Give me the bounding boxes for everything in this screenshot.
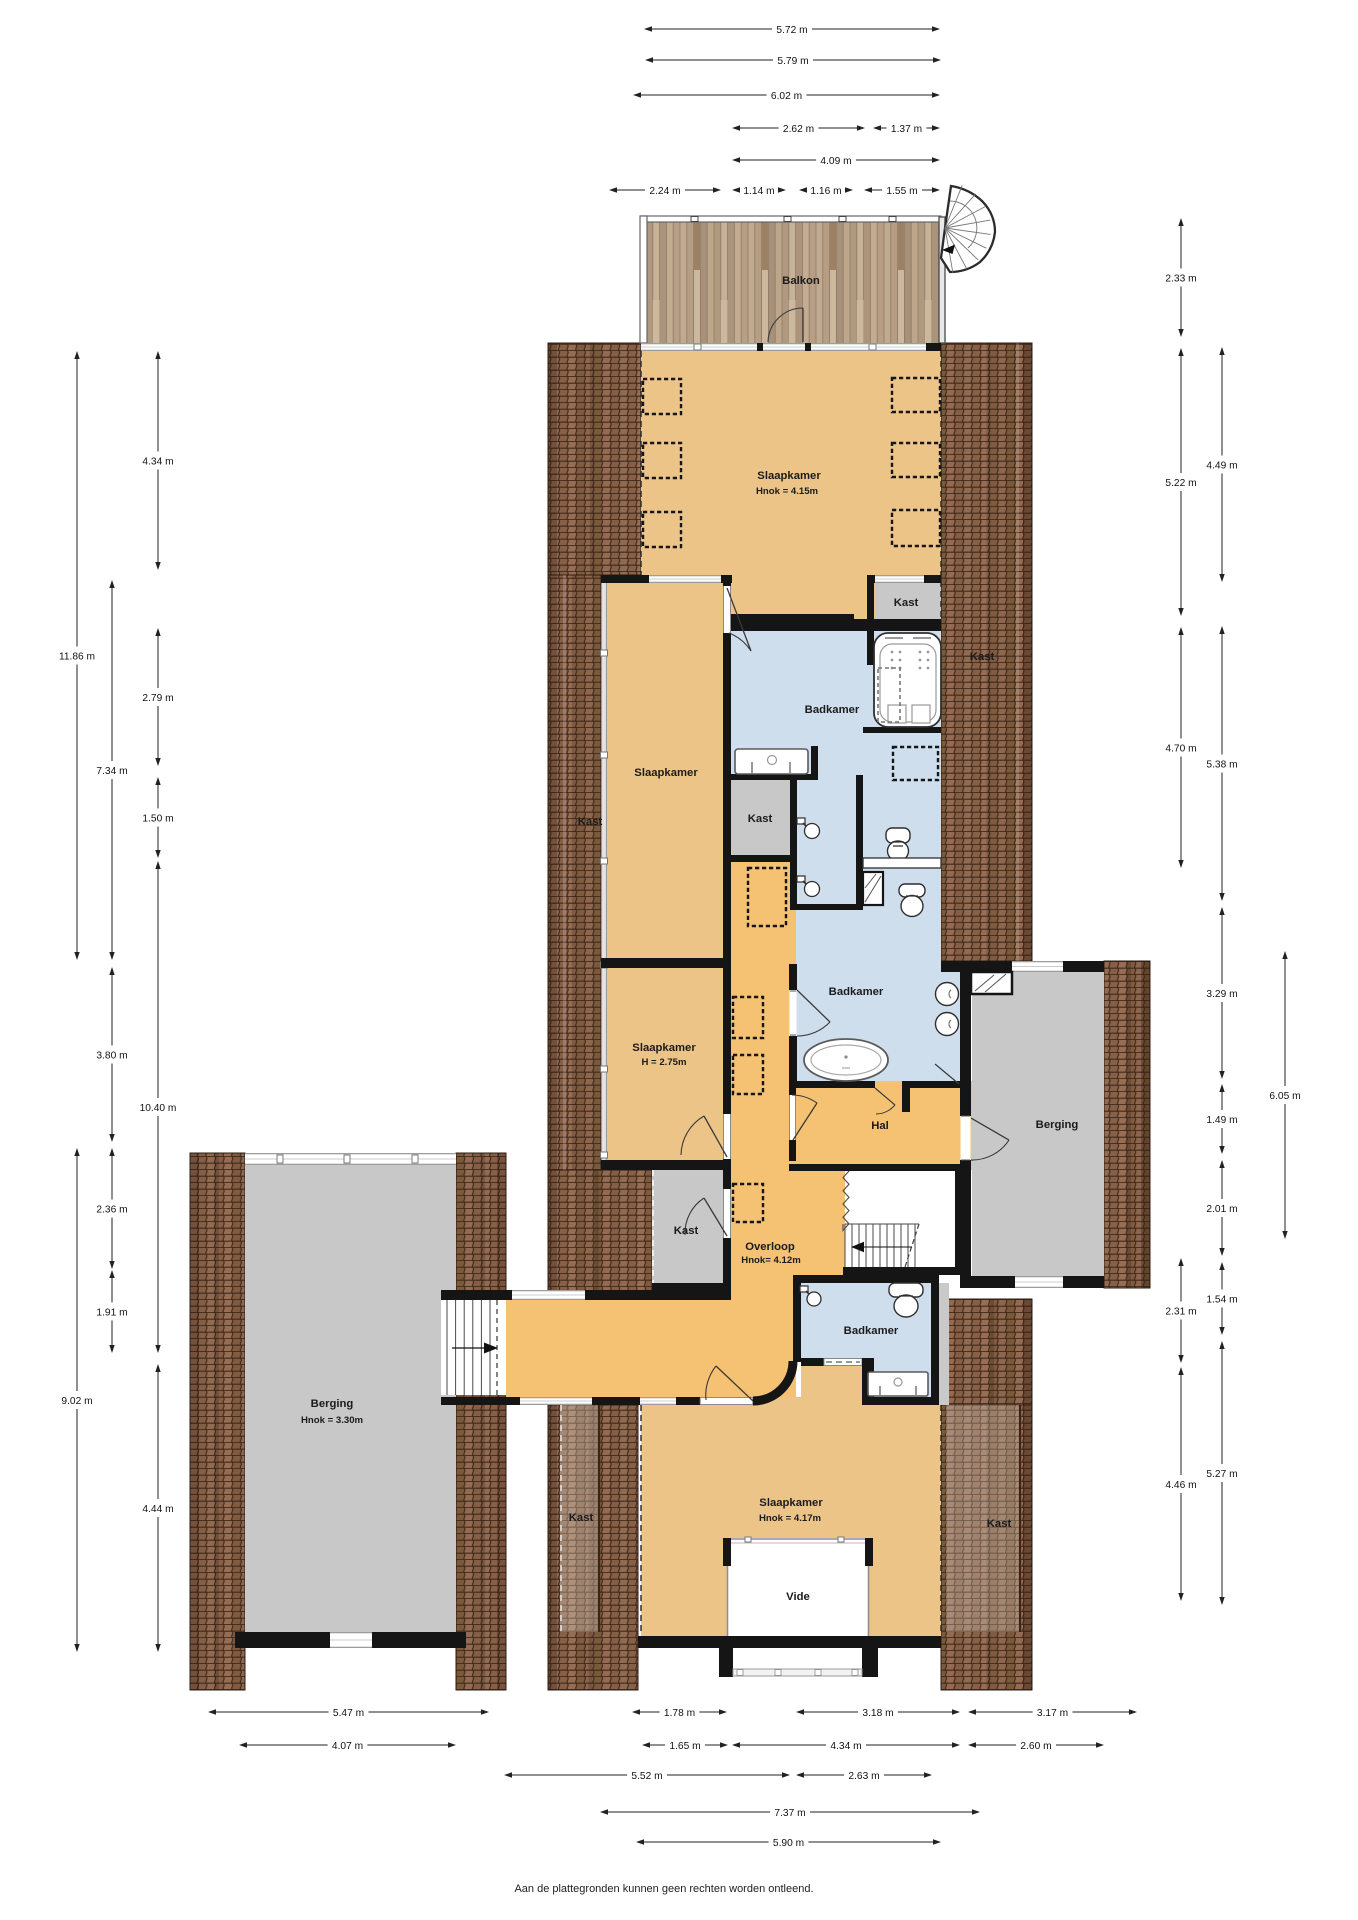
- svg-text:Kast: Kast: [569, 1512, 594, 1524]
- svg-text:4.09 m: 4.09 m: [820, 156, 851, 167]
- svg-text:2.36 m: 2.36 m: [96, 1205, 127, 1216]
- svg-text:4.49 m: 4.49 m: [1206, 461, 1237, 472]
- svg-text:9.02 m: 9.02 m: [61, 1396, 92, 1407]
- svg-text:2.63 m: 2.63 m: [848, 1771, 879, 1782]
- svg-text:Badkamer: Badkamer: [805, 704, 860, 716]
- svg-text:5.22 m: 5.22 m: [1165, 478, 1196, 489]
- svg-text:Balkon: Balkon: [782, 275, 820, 287]
- svg-text:3.29 m: 3.29 m: [1206, 989, 1237, 1000]
- svg-text:Kast: Kast: [970, 651, 995, 663]
- svg-text:1.37 m: 1.37 m: [891, 124, 922, 135]
- svg-text:Berging: Berging: [1036, 1119, 1079, 1131]
- svg-text:5.38 m: 5.38 m: [1206, 760, 1237, 771]
- svg-text:Hnok= 4.12m: Hnok= 4.12m: [741, 1255, 800, 1266]
- svg-text:Kast: Kast: [578, 816, 603, 828]
- svg-text:4.34 m: 4.34 m: [830, 1741, 861, 1752]
- svg-text:Kast: Kast: [987, 1518, 1012, 1530]
- svg-text:3.17 m: 3.17 m: [1037, 1708, 1068, 1719]
- svg-text:2.01 m: 2.01 m: [1206, 1204, 1237, 1215]
- svg-text:4.07 m: 4.07 m: [332, 1741, 363, 1752]
- svg-text:1.91 m: 1.91 m: [96, 1308, 127, 1319]
- svg-text:Badkamer: Badkamer: [829, 986, 884, 998]
- svg-text:7.34 m: 7.34 m: [96, 766, 127, 777]
- svg-text:1.54 m: 1.54 m: [1206, 1295, 1237, 1306]
- svg-text:Kast: Kast: [674, 1225, 699, 1237]
- svg-text:1.78 m: 1.78 m: [664, 1708, 695, 1719]
- svg-text:5.47 m: 5.47 m: [333, 1708, 364, 1719]
- svg-text:4.44 m: 4.44 m: [142, 1504, 173, 1515]
- svg-text:Slaapkamer: Slaapkamer: [759, 1497, 823, 1509]
- svg-text:3.18 m: 3.18 m: [862, 1708, 893, 1719]
- svg-text:Berging: Berging: [311, 1398, 354, 1410]
- svg-text:3.80 m: 3.80 m: [96, 1051, 127, 1062]
- svg-text:2.24 m: 2.24 m: [649, 186, 680, 197]
- svg-text:Hnok = 3.30m: Hnok = 3.30m: [301, 1415, 363, 1426]
- svg-text:1.55 m: 1.55 m: [886, 186, 917, 197]
- svg-text:1.49 m: 1.49 m: [1206, 1115, 1237, 1126]
- svg-text:Hal: Hal: [871, 1120, 889, 1132]
- svg-text:5.90 m: 5.90 m: [773, 1838, 804, 1849]
- svg-text:H = 2.75m: H = 2.75m: [641, 1057, 686, 1068]
- svg-text:Hnok = 4.17m: Hnok = 4.17m: [759, 1513, 821, 1524]
- svg-text:10.40 m: 10.40 m: [140, 1103, 177, 1114]
- svg-text:2.60 m: 2.60 m: [1020, 1741, 1051, 1752]
- svg-text:Vide: Vide: [786, 1591, 810, 1603]
- svg-text:1.65 m: 1.65 m: [669, 1741, 700, 1752]
- svg-text:5.52 m: 5.52 m: [631, 1771, 662, 1782]
- svg-text:Aan de plattegronden kunnen ge: Aan de plattegronden kunnen geen rechten…: [514, 1883, 813, 1895]
- svg-text:5.27 m: 5.27 m: [1206, 1469, 1237, 1480]
- svg-text:Hnok = 4.15m: Hnok = 4.15m: [756, 486, 818, 497]
- svg-text:5.79 m: 5.79 m: [777, 56, 808, 67]
- svg-text:2.31 m: 2.31 m: [1165, 1307, 1196, 1318]
- svg-text:4.70 m: 4.70 m: [1165, 744, 1196, 755]
- svg-text:Kast: Kast: [894, 597, 919, 609]
- svg-text:7.37 m: 7.37 m: [774, 1808, 805, 1819]
- svg-text:1.16 m: 1.16 m: [810, 186, 841, 197]
- svg-text:Badkamer: Badkamer: [844, 1325, 899, 1337]
- svg-text:Slaapkamer: Slaapkamer: [757, 470, 821, 482]
- svg-text:2.62 m: 2.62 m: [783, 124, 814, 135]
- svg-text:5.72 m: 5.72 m: [776, 25, 807, 36]
- svg-text:Kast: Kast: [748, 813, 773, 825]
- svg-text:4.34 m: 4.34 m: [142, 457, 173, 468]
- svg-text:Slaapkamer: Slaapkamer: [632, 1042, 696, 1054]
- svg-text:6.02 m: 6.02 m: [771, 91, 802, 102]
- svg-text:Overloop: Overloop: [745, 1241, 795, 1253]
- svg-text:2.33 m: 2.33 m: [1165, 274, 1196, 285]
- svg-text:11.86 m: 11.86 m: [59, 652, 95, 663]
- svg-text:6.05 m: 6.05 m: [1269, 1091, 1300, 1102]
- svg-text:Slaapkamer: Slaapkamer: [634, 767, 698, 779]
- svg-text:1.50 m: 1.50 m: [142, 814, 173, 825]
- svg-text:4.46 m: 4.46 m: [1165, 1480, 1196, 1491]
- svg-text:2.79 m: 2.79 m: [142, 693, 173, 704]
- svg-text:1.14 m: 1.14 m: [743, 186, 774, 197]
